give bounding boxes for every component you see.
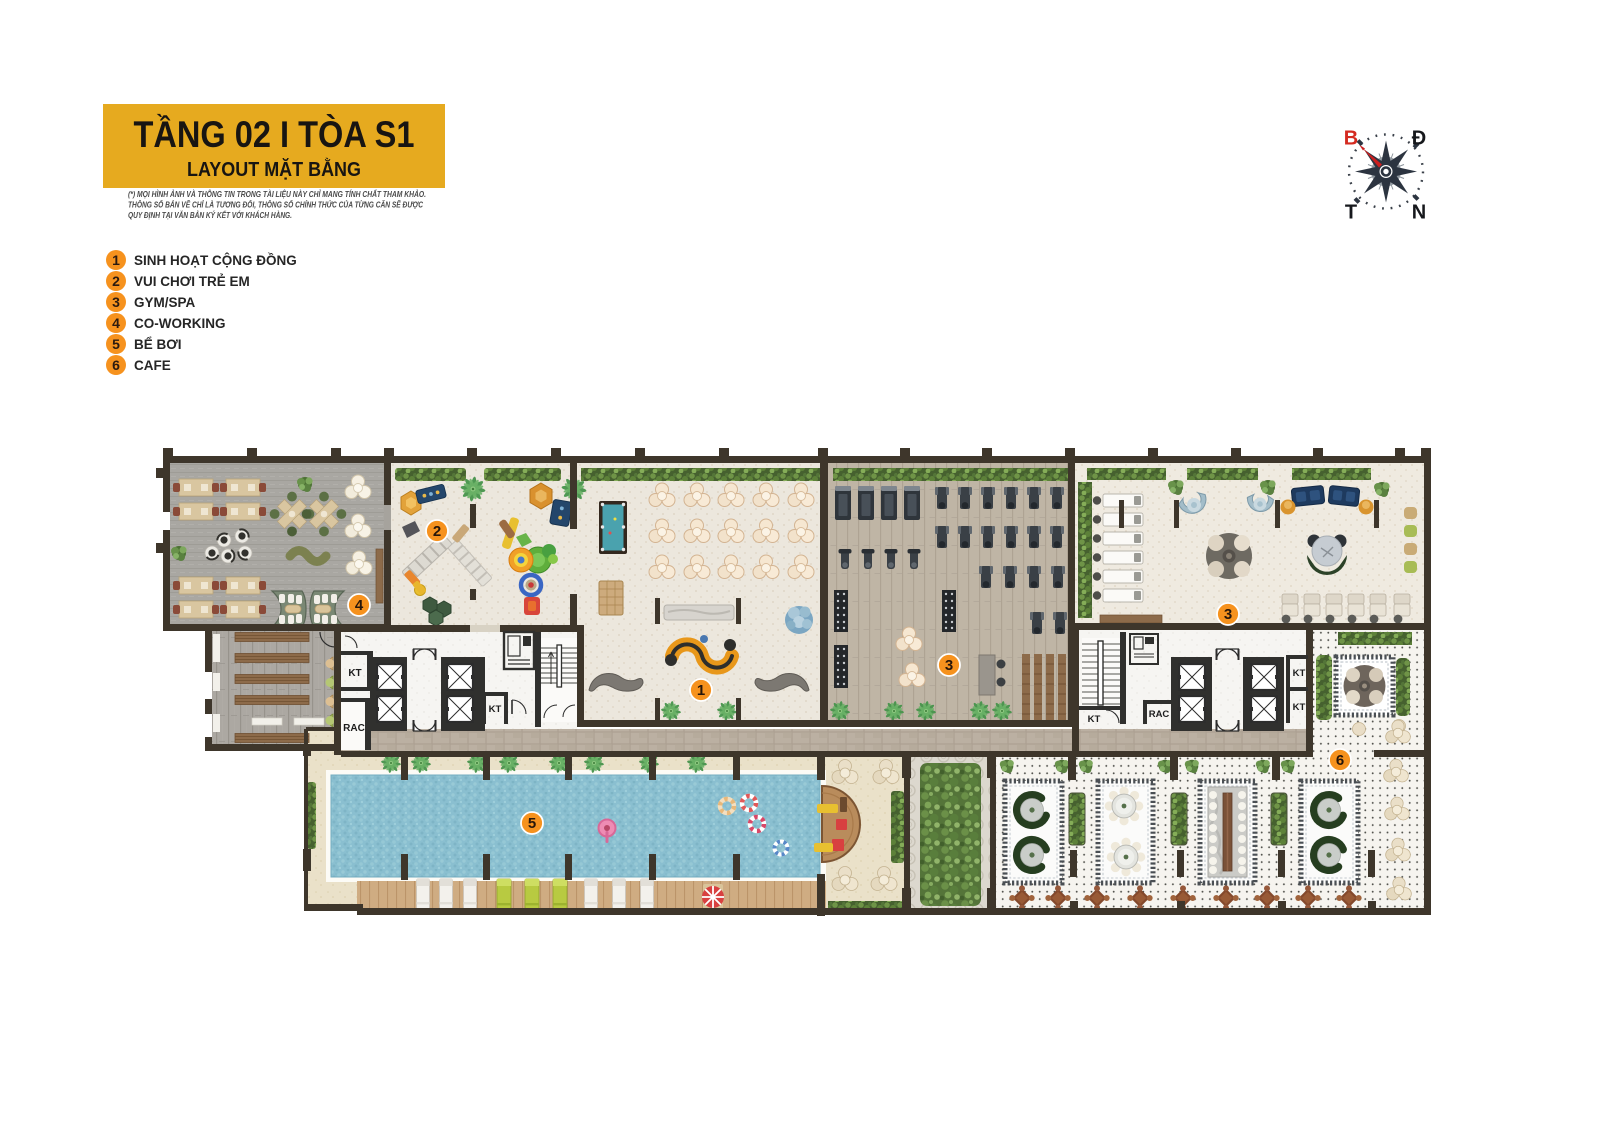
svg-text:(*) MỌI HÌNH ẢNH VÀ THÔNG TIN: (*) MỌI HÌNH ẢNH VÀ THÔNG TIN TRONG TÀI …	[128, 188, 426, 199]
svg-text:TẦNG 02 I TÒA S1: TẦNG 02 I TÒA S1	[134, 113, 415, 155]
svg-text:5: 5	[528, 815, 536, 832]
svg-text:6: 6	[112, 357, 120, 373]
svg-text:BỂ BƠI: BỂ BƠI	[134, 337, 182, 352]
svg-text:THÔNG SỐ BẢN VẼ CHỈ LÀ TƯƠNG Đ: THÔNG SỐ BẢN VẼ CHỈ LÀ TƯƠNG ĐỐI, THÔNG …	[128, 199, 424, 210]
svg-text:6: 6	[1336, 752, 1344, 769]
svg-text:3: 3	[945, 657, 953, 674]
svg-text:GYM/SPA: GYM/SPA	[134, 295, 196, 310]
svg-text:2: 2	[112, 273, 120, 289]
svg-text:KT: KT	[348, 668, 361, 679]
svg-text:3: 3	[112, 294, 120, 310]
svg-text:RAC: RAC	[1149, 709, 1170, 720]
svg-text:RAC: RAC	[343, 723, 365, 734]
svg-text:KT: KT	[1088, 714, 1101, 725]
svg-text:CO-WORKING: CO-WORKING	[134, 316, 226, 331]
svg-text:SINH HOẠT CỘNG ĐỒNG: SINH HOẠT CỘNG ĐỒNG	[134, 253, 297, 268]
svg-text:3: 3	[1224, 606, 1232, 623]
svg-text:B: B	[1344, 128, 1358, 150]
svg-text:4: 4	[112, 315, 120, 331]
svg-text:1: 1	[697, 682, 705, 699]
svg-text:KT: KT	[1293, 702, 1306, 713]
svg-text:T: T	[1345, 202, 1357, 224]
svg-text:2: 2	[433, 523, 441, 540]
svg-text:4: 4	[355, 597, 364, 614]
svg-text:KT: KT	[1293, 668, 1306, 679]
svg-text:LAYOUT MẶT BẰNG: LAYOUT MẶT BẰNG	[187, 157, 361, 181]
svg-text:5: 5	[112, 336, 120, 352]
svg-text:CAFE: CAFE	[134, 358, 171, 373]
svg-text:1: 1	[112, 252, 120, 268]
svg-text:N: N	[1412, 202, 1426, 224]
svg-text:QUY ĐỊNH TẠI VĂN BẢN KÝ KẾT VỚ: QUY ĐỊNH TẠI VĂN BẢN KÝ KẾT VỚI KHÁCH HÀ…	[128, 209, 292, 220]
svg-text:Đ: Đ	[1412, 128, 1426, 150]
svg-text:VUI CHƠI TRẺ EM: VUI CHƠI TRẺ EM	[134, 274, 250, 289]
svg-text:KT: KT	[489, 704, 502, 715]
